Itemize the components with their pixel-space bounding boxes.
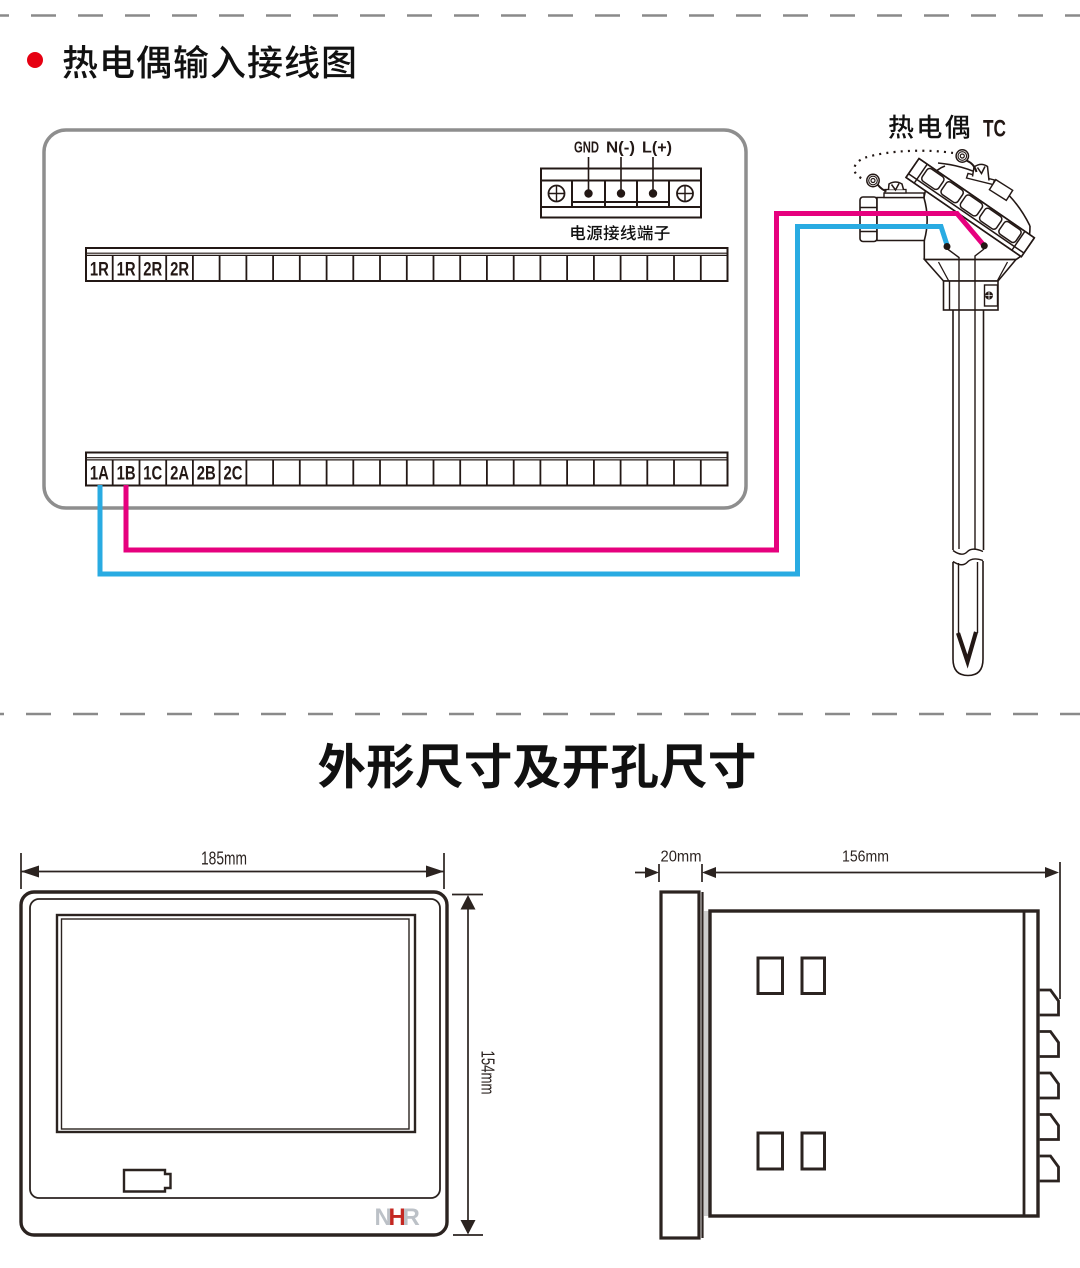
svg-text:L(+): L(+) xyxy=(642,140,672,157)
svg-text:1B: 1B xyxy=(117,464,136,485)
svg-text:R: R xyxy=(403,1204,420,1231)
svg-text:2B: 2B xyxy=(197,464,216,485)
svg-text:2R: 2R xyxy=(143,260,162,281)
svg-text:GND: GND xyxy=(574,140,599,157)
svg-text:2A: 2A xyxy=(170,464,189,485)
svg-text:1R: 1R xyxy=(90,260,109,281)
svg-text:156mm: 156mm xyxy=(842,849,889,866)
svg-text:2R: 2R xyxy=(170,260,189,281)
svg-text:N(-): N(-) xyxy=(606,140,635,157)
svg-text:1C: 1C xyxy=(143,464,162,485)
svg-text:185mm: 185mm xyxy=(201,849,247,869)
svg-text:1R: 1R xyxy=(117,260,136,281)
svg-text:154mm: 154mm xyxy=(478,1051,498,1095)
svg-text:20mm: 20mm xyxy=(661,849,702,866)
svg-text:1A: 1A xyxy=(90,464,109,485)
svg-text:TC: TC xyxy=(983,116,1006,143)
svg-text:2C: 2C xyxy=(224,464,243,485)
